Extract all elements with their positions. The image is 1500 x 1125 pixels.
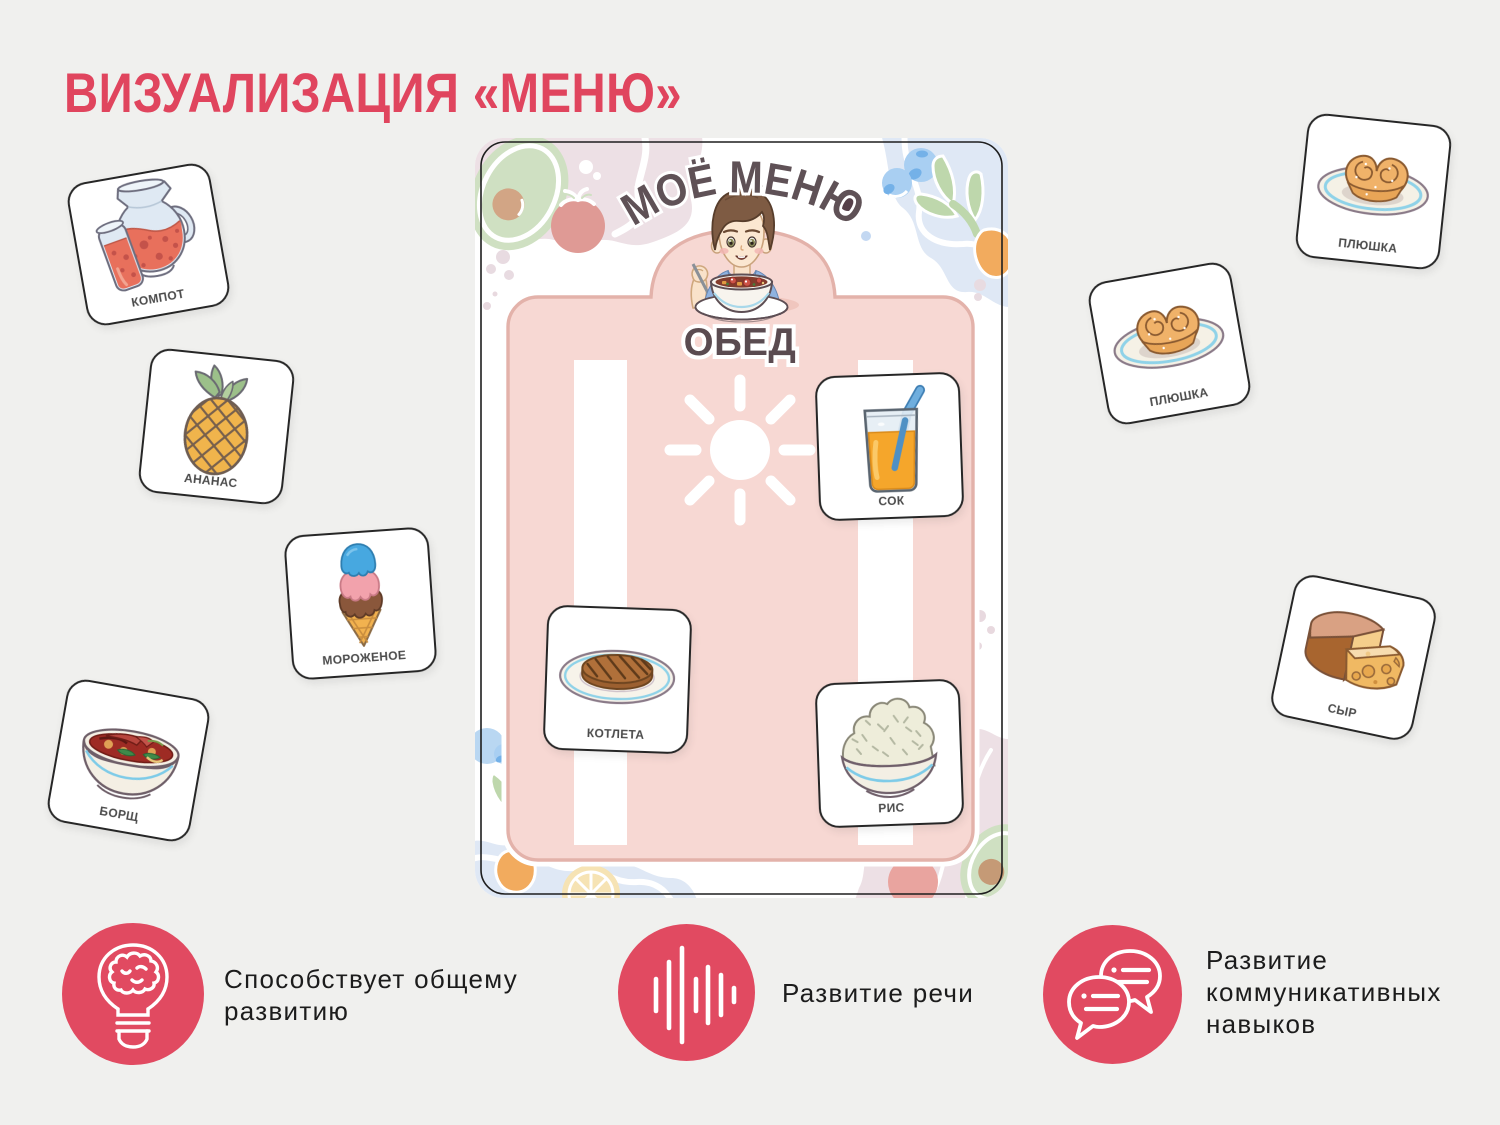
- svg-text:ОБЕД: ОБЕД: [684, 321, 797, 364]
